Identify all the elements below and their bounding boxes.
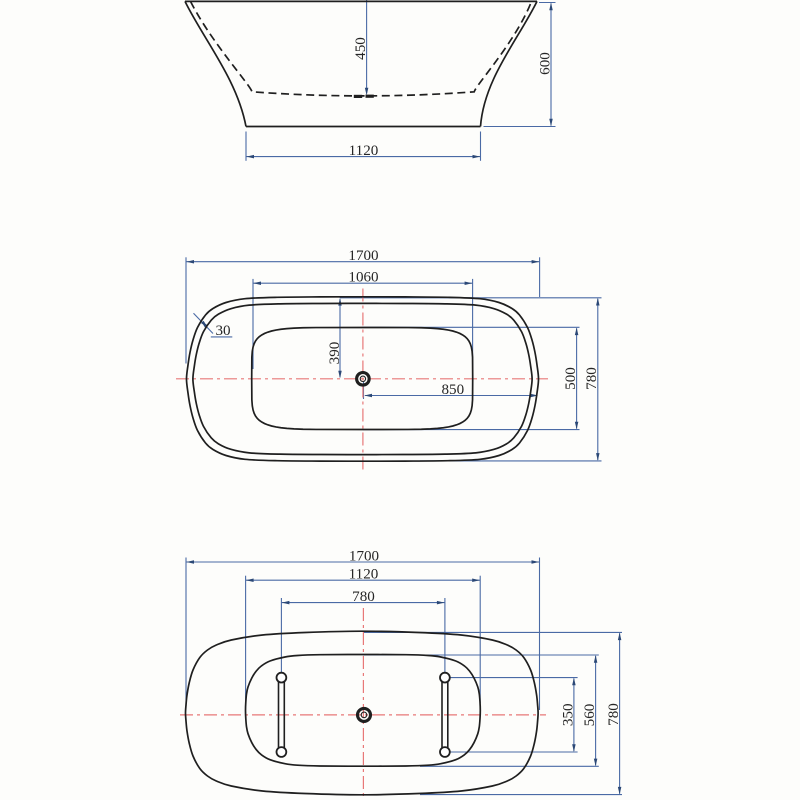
svg-text:390: 390 <box>327 342 343 365</box>
svg-text:350: 350 <box>560 703 576 726</box>
svg-text:1120: 1120 <box>349 143 379 159</box>
svg-text:450: 450 <box>353 37 369 60</box>
svg-text:780: 780 <box>352 589 375 605</box>
svg-text:780: 780 <box>606 703 622 726</box>
svg-text:1700: 1700 <box>349 548 379 564</box>
svg-text:850: 850 <box>441 382 464 398</box>
svg-text:600: 600 <box>537 52 553 75</box>
svg-text:1060: 1060 <box>348 270 378 286</box>
svg-text:560: 560 <box>582 704 598 727</box>
svg-text:500: 500 <box>563 367 579 390</box>
svg-text:1120: 1120 <box>349 567 379 583</box>
svg-text:30: 30 <box>215 323 230 339</box>
svg-text:780: 780 <box>584 367 600 390</box>
svg-text:1700: 1700 <box>348 248 378 264</box>
